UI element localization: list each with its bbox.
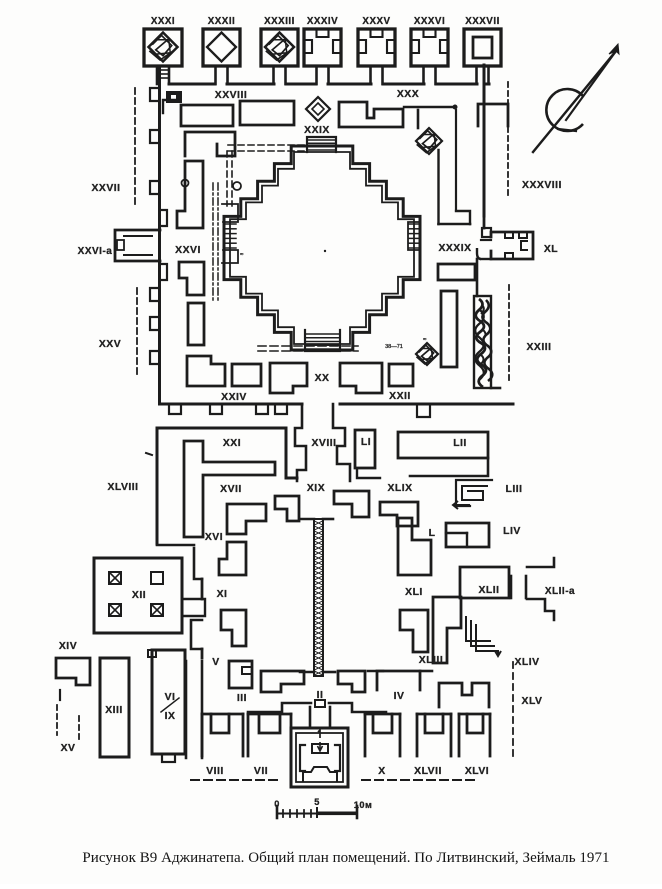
svg-text:XXII: XXII xyxy=(389,391,411,402)
svg-text:XLIV: XLIV xyxy=(514,657,539,668)
svg-text:0: 0 xyxy=(274,799,280,809)
svg-text:XXVI-а: XXVI-а xyxy=(78,246,113,257)
svg-text:Рисунок В9 Аджинатепа. Общий п: Рисунок В9 Аджинатепа. Общий план помеще… xyxy=(82,850,609,866)
svg-text:XXX: XXX xyxy=(397,89,419,100)
svg-text:XLIII: XLIII xyxy=(419,655,443,666)
svg-text:XIV: XIV xyxy=(59,641,77,652)
svg-text:XXXVI: XXXVI xyxy=(414,16,445,27)
svg-text:XXVIII: XXVIII xyxy=(215,90,247,101)
svg-text:XXIV: XXIV xyxy=(221,392,247,403)
svg-text:XLI: XLI xyxy=(405,587,423,598)
svg-text:38—71: 38—71 xyxy=(385,344,403,350)
svg-text:XXXIX: XXXIX xyxy=(438,243,471,254)
svg-text:XLVIII: XLVIII xyxy=(107,482,138,493)
svg-text:III: III xyxy=(237,693,247,704)
svg-text:XVII: XVII xyxy=(220,484,242,495)
svg-text:XXXII: XXXII xyxy=(208,16,236,27)
svg-text:IV: IV xyxy=(394,691,405,702)
svg-text:XXXV: XXXV xyxy=(362,16,390,27)
svg-text:XLVII: XLVII xyxy=(414,766,442,777)
svg-text:XXI: XXI xyxy=(223,438,241,449)
svg-text:XXV: XXV xyxy=(99,339,121,350)
svg-text:LI: LI xyxy=(361,437,371,448)
svg-text:≈: ≈ xyxy=(423,337,427,343)
svg-text:XVI: XVI xyxy=(205,532,223,543)
svg-text:V: V xyxy=(212,657,219,668)
svg-text:XXIII: XXIII xyxy=(526,342,551,353)
svg-text:XI: XI xyxy=(217,589,228,600)
svg-text:XLIX: XLIX xyxy=(387,483,412,494)
svg-text:LIV: LIV xyxy=(503,526,521,537)
svg-text:XXVI: XXVI xyxy=(175,245,201,256)
svg-text:XXXIII: XXXIII xyxy=(264,16,295,27)
svg-text:LIII: LIII xyxy=(505,484,522,495)
svg-text:IX: IX xyxy=(165,711,176,722)
svg-text:LII: LII xyxy=(453,438,467,449)
svg-text:XL: XL xyxy=(544,244,558,255)
svg-text:5: 5 xyxy=(314,797,320,807)
svg-text:XXXVII: XXXVII xyxy=(465,16,500,27)
svg-text:XII: XII xyxy=(132,590,146,601)
svg-text:XXXI: XXXI xyxy=(151,16,175,27)
svg-text:≈: ≈ xyxy=(240,252,244,258)
svg-text:VIII: VIII xyxy=(206,766,224,777)
svg-text:XXXIV: XXXIV xyxy=(307,16,338,27)
svg-text:XLII-а: XLII-а xyxy=(545,586,575,597)
svg-text:L: L xyxy=(429,528,436,539)
svg-text:XX: XX xyxy=(315,373,330,384)
svg-text:XLVI: XLVI xyxy=(465,766,489,777)
svg-text:XVIII: XVIII xyxy=(311,438,336,449)
svg-text:X: X xyxy=(378,766,385,777)
svg-text:XIII: XIII xyxy=(105,705,123,716)
svg-text:VII: VII xyxy=(254,766,268,777)
svg-text:XXXVIII: XXXVIII xyxy=(522,180,562,191)
svg-text:XV: XV xyxy=(61,743,76,754)
svg-text:XLV: XLV xyxy=(522,696,543,707)
svg-text:XIX: XIX xyxy=(307,483,325,494)
svg-text:XLII: XLII xyxy=(478,585,499,596)
svg-text:XXVII: XXVII xyxy=(91,183,120,194)
svg-text:10м: 10м xyxy=(354,800,373,810)
svg-text:XXIX: XXIX xyxy=(304,125,330,136)
